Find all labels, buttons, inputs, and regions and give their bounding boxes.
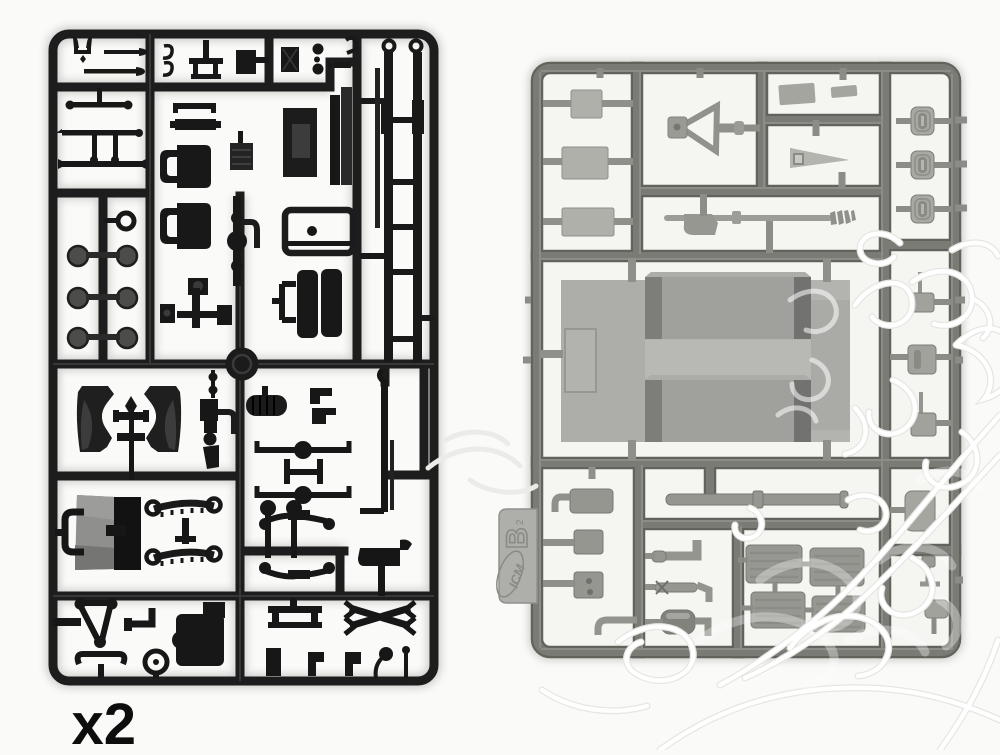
svg-text:2: 2 — [515, 519, 526, 525]
svg-text:B: B — [501, 527, 534, 549]
svg-text:x2: x2 — [72, 692, 137, 750]
